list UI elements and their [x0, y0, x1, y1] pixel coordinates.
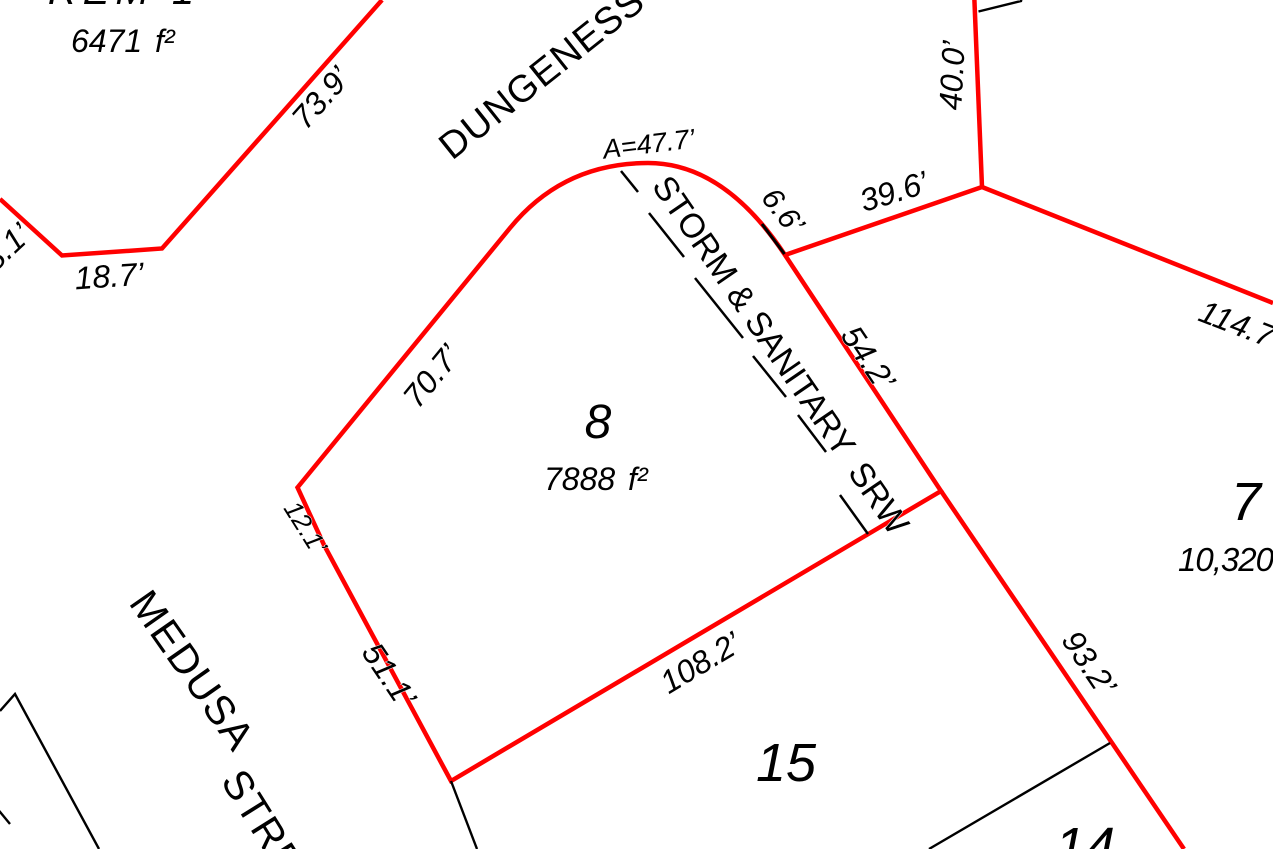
svg-text:15: 15: [756, 733, 817, 793]
svg-text:40.0’: 40.0’: [932, 39, 972, 111]
svg-text:8: 8: [585, 396, 612, 449]
svg-text:REM 1: REM 1: [48, 0, 200, 13]
svg-text:14: 14: [1055, 817, 1115, 849]
svg-text:18.7’: 18.7’: [73, 256, 146, 297]
svg-text:7888 f²: 7888 f²: [544, 461, 649, 497]
svg-text:10,320: 10,320: [1178, 541, 1273, 578]
svg-text:7: 7: [1231, 472, 1263, 532]
svg-text:6471 f²: 6471 f²: [71, 23, 176, 59]
